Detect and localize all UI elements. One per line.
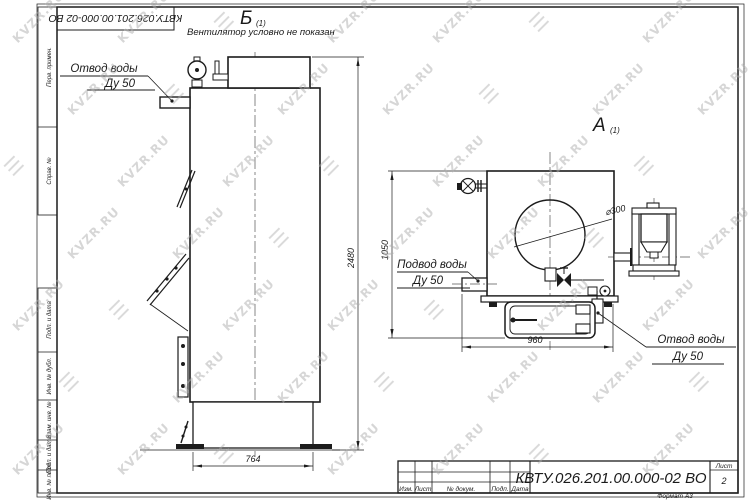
view-b-note: Вентилятор условно не показан [187,27,336,38]
titleblock-col-podp: Подп. [491,485,508,493]
safety-valve-side [188,57,206,88]
base-foot-left [176,444,204,449]
callout-otvod-top: Отвод воды Ду 50 [60,63,174,103]
margin-label-vzam: Взам. инв. № [46,401,53,439]
upper-door-open [147,254,189,331]
callout-podvod-line1: Подвод воды [397,259,467,271]
base-foot-right [300,444,332,449]
view-b-drawing [140,52,340,456]
dim-960: 960 [527,335,542,345]
dim-1050: 1050 [380,240,390,260]
margin-label-podp1: Подп. и дата [47,301,53,339]
base-latch [181,421,188,443]
lower-door-front [505,302,595,338]
dim-2480: 2480 [346,248,356,269]
callout-otvod-bottom-line2: Ду 50 [671,351,704,363]
titleblock-col-doc: № докум. [447,485,476,493]
view-b-label: Б [240,8,252,29]
drawing-canvas: Перв. примен. Справ. № Подп. и дата Инв.… [0,0,750,500]
titleblock-col-list: Лист [414,486,432,493]
drawing-sheet: Перв. примен. Справ. № Подп. и дата Инв.… [0,0,750,500]
titleblock-col-izm: Изм. [399,486,413,493]
callout-otvod-bottom-line1: Отвод воды [657,334,725,346]
safety-valve-front [457,179,487,194]
top-designation-stamp: КВТУ.026.201.00.000-02 ВО [49,12,183,24]
view-a-drawing [452,152,690,350]
callout-otvod-bottom: Отвод воды Ду 50 [596,311,736,364]
flue-collar [228,57,310,88]
titleblock-col-data: Дата [510,486,529,493]
callout-otvod-top-line2: Ду 50 [103,78,136,90]
margin-label-inv-podl: Инв. № подл. [46,462,53,499]
water-outlet-pipe-side [160,97,190,108]
titleblock-sheet-number: 2 [720,476,726,486]
lower-door-hinge [178,337,188,397]
margin-label-sprav: Справ. № [46,157,53,185]
callout-otvod-top-line1: Отвод воды [70,63,138,75]
boiler-base [193,402,313,448]
view-a-label-sub: (1) [610,126,620,135]
dim-764: 764 [245,454,260,464]
margin-label-perv: Перв. примен. [47,47,53,87]
titleblock-format: Формат А3 [657,493,693,500]
titleblock-designation: КВТУ.026.201.00.000-02 ВО [515,470,706,487]
margin-label-inv-dubl: Инв. № дубл. [46,358,53,395]
sensor-pipe [213,61,228,80]
view-a-label: А [592,115,606,136]
callout-podvod-line2: Ду 50 [411,275,444,287]
titleblock-sheet-label: Лист [715,463,733,470]
water-inlet-pipe [462,278,487,291]
